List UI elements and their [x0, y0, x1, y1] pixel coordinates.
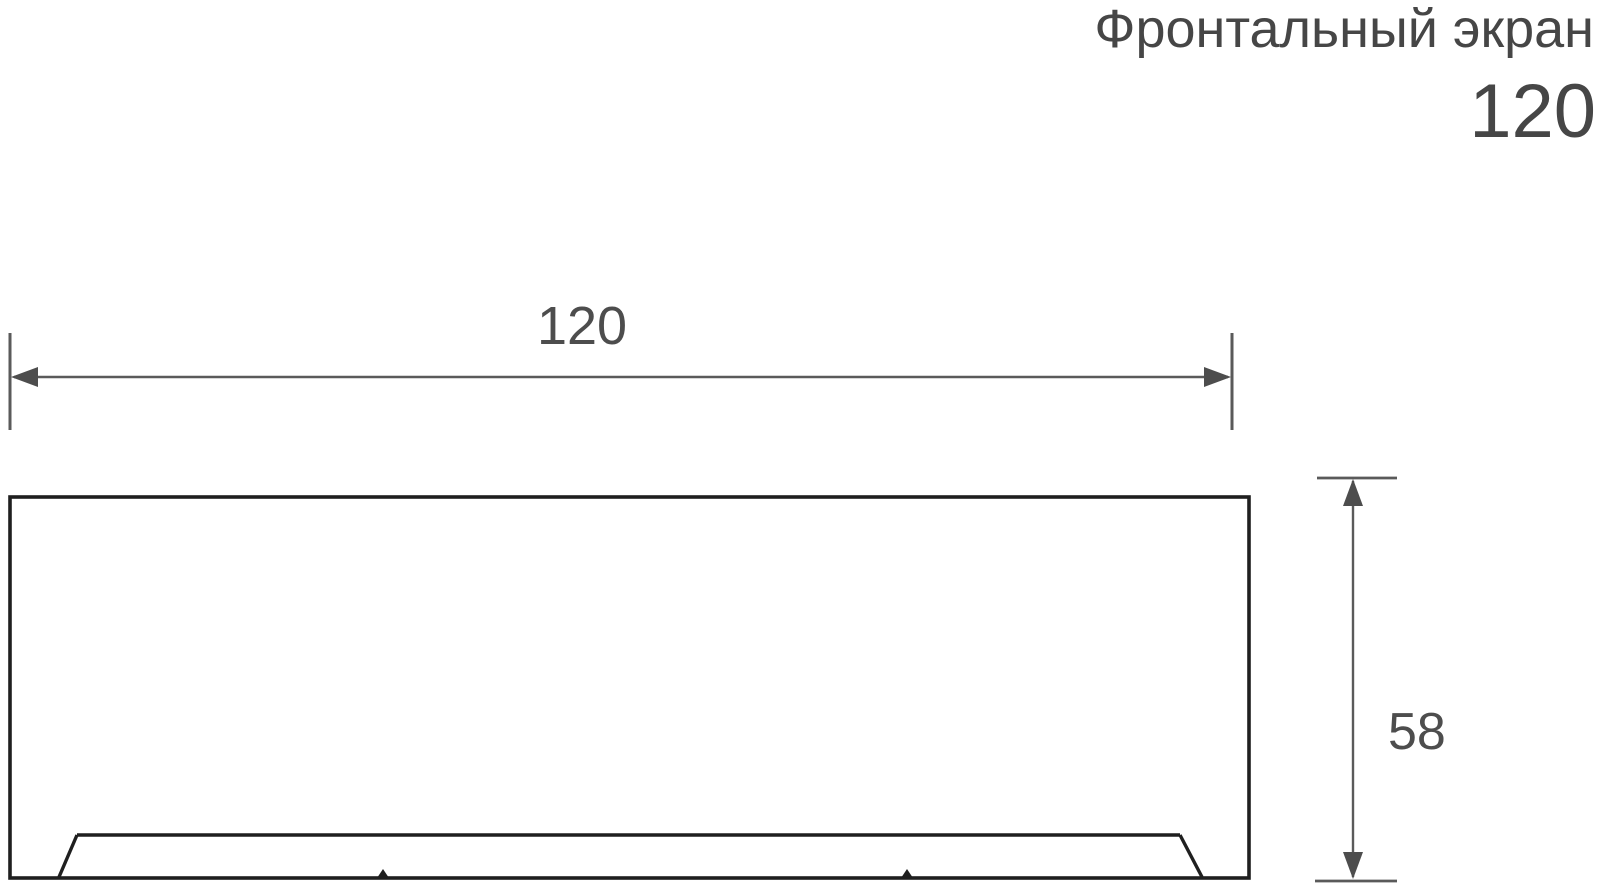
drawing-canvas: Фронтальный экран 120 120 58	[0, 0, 1600, 888]
width-dimension-label: 120	[482, 299, 682, 353]
height-dimension-label: 58	[1388, 706, 1446, 758]
panel-outline	[10, 497, 1249, 878]
height-arrow-down-icon	[1343, 852, 1363, 879]
front-panel-drawing	[0, 0, 1600, 888]
height-arrow-up-icon	[1343, 479, 1363, 506]
width-arrow-left-icon	[11, 367, 38, 387]
bottom-tick-left	[377, 869, 389, 878]
width-arrow-right-icon	[1204, 367, 1231, 387]
plinth-right-bevel	[1180, 835, 1202, 877]
bottom-tick-right	[901, 869, 913, 878]
plinth-left-bevel	[59, 835, 77, 877]
